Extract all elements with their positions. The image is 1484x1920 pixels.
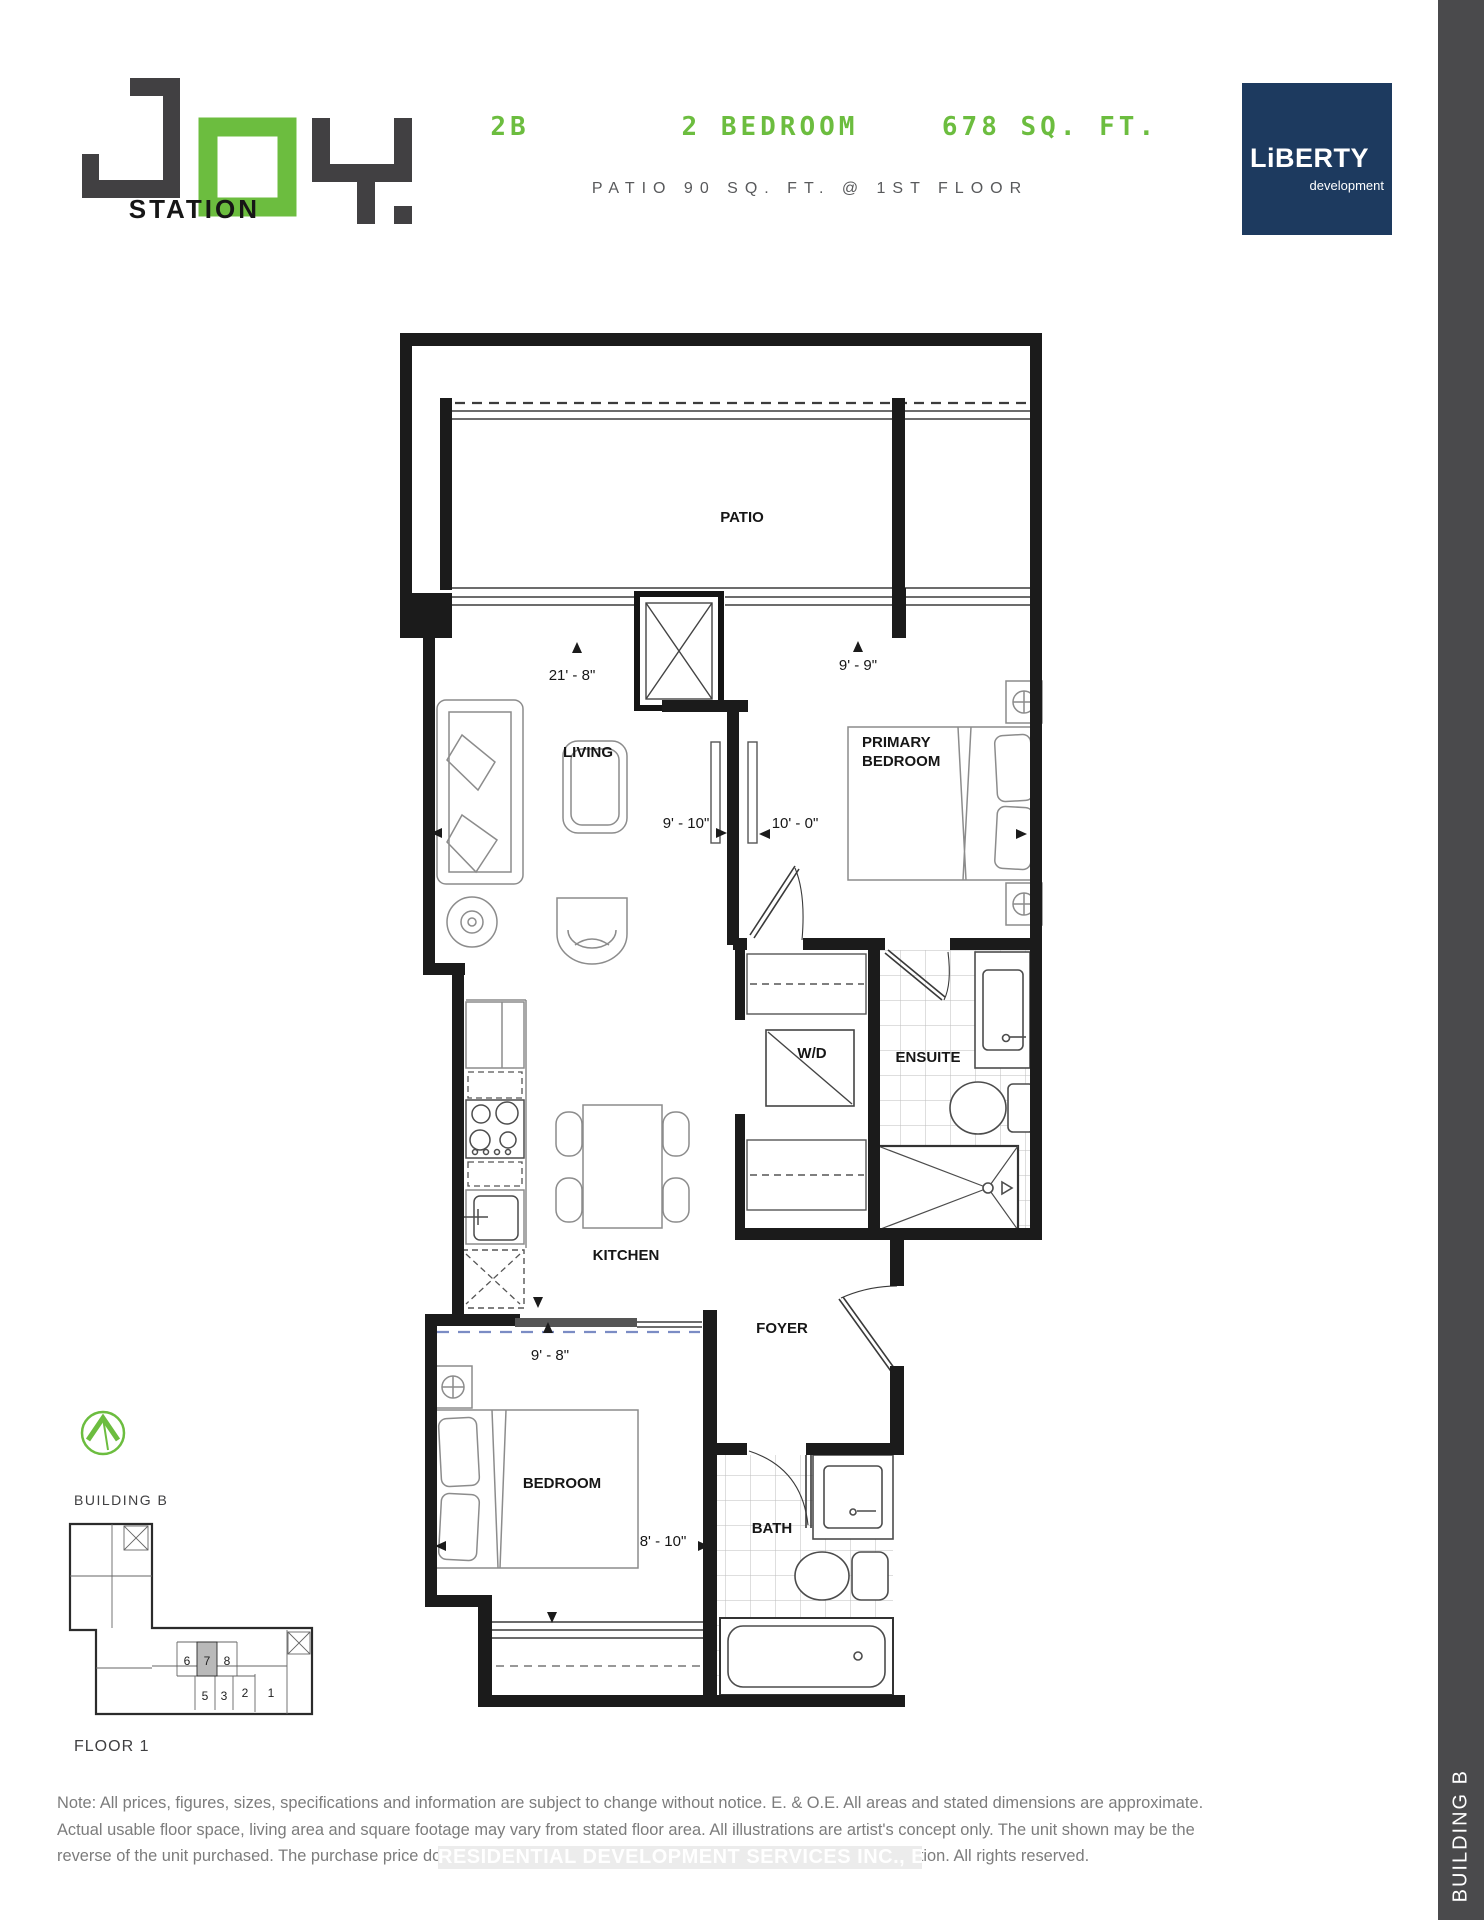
keyplan-building-label: BUILDING B bbox=[74, 1492, 168, 1508]
dim-bedroom-window: 9' - 8" bbox=[531, 1347, 569, 1364]
label-patio: PATIO bbox=[720, 509, 764, 526]
brokerage-watermark: RESIDENTIAL DEVELOPMENT SERVICES INC., B… bbox=[438, 1846, 922, 1869]
dim-living-depth: 21' - 8" bbox=[549, 667, 596, 684]
dim-bedroom-width: 8' - 10" bbox=[640, 1533, 687, 1550]
label-primary-2: BEDROOM bbox=[862, 753, 940, 770]
label-bath: BATH bbox=[752, 1520, 793, 1537]
dim-living-width: 9' - 10" bbox=[663, 815, 710, 832]
label-wd: W/D bbox=[797, 1045, 826, 1062]
building-b-side-band: BUILDING B bbox=[1438, 0, 1484, 1920]
keyplan-floor-label: FLOOR 1 bbox=[74, 1738, 149, 1756]
label-ensuite: ENSUITE bbox=[895, 1049, 960, 1066]
svg-text:1: 1 bbox=[268, 1686, 275, 1700]
dim-primary-width: 10' - 0" bbox=[772, 815, 819, 832]
label-kitchen: KITCHEN bbox=[593, 1247, 660, 1264]
keyplan-map: 6 7 8 5 3 2 1 bbox=[52, 1518, 327, 1723]
elevator-shaft bbox=[637, 594, 721, 708]
dim-primary-window: 9' - 9" bbox=[839, 657, 877, 674]
svg-text:6: 6 bbox=[184, 1654, 191, 1668]
label-bedroom: BEDROOM bbox=[523, 1475, 601, 1492]
label-living: LIVING bbox=[563, 744, 613, 761]
north-compass-icon bbox=[80, 1410, 126, 1456]
svg-text:2: 2 bbox=[242, 1686, 249, 1700]
svg-text:3: 3 bbox=[221, 1689, 228, 1703]
svg-text:8: 8 bbox=[224, 1654, 231, 1668]
disclaimer-line-1: Note: All prices, figures, sizes, specif… bbox=[57, 1790, 1427, 1817]
svg-text:7: 7 bbox=[204, 1654, 211, 1668]
label-foyer: FOYER bbox=[756, 1320, 808, 1337]
svg-text:5: 5 bbox=[202, 1689, 209, 1703]
building-b-vertical-label: BUILDING B bbox=[1450, 1769, 1473, 1902]
label-primary-1: PRIMARY bbox=[862, 734, 931, 751]
disclaimer-line-2: Actual usable floor space, living area a… bbox=[57, 1817, 1427, 1844]
